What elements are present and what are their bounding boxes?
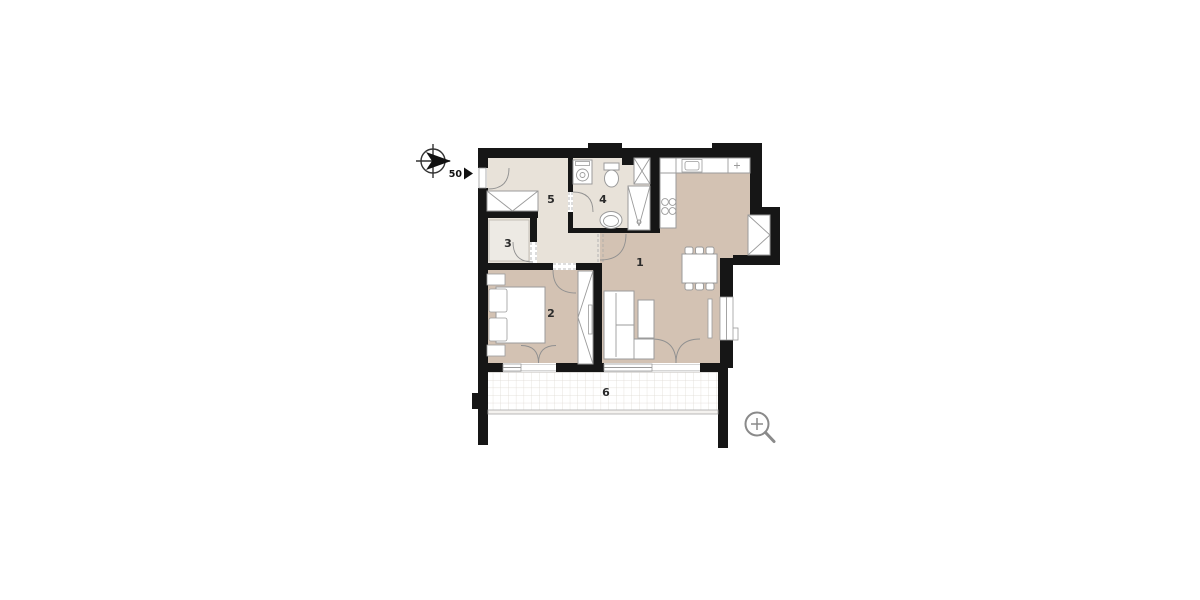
balcony-railing	[488, 410, 718, 414]
built-in-wardrobe	[748, 215, 770, 255]
window-right	[720, 297, 733, 340]
room-label-5: 5	[547, 193, 555, 206]
sideboard	[708, 299, 712, 338]
bathroom-sink	[600, 212, 622, 229]
window-bedroom-bottom	[503, 364, 521, 371]
zoom-in-icon[interactable]	[746, 413, 775, 442]
room-label-4: 4	[599, 193, 607, 206]
entrance-marker-label: 50	[449, 169, 463, 180]
washing-machine	[573, 160, 592, 184]
dining-table	[682, 254, 717, 283]
entrance-arrow-icon	[464, 168, 473, 180]
entrance-marker: 50	[449, 168, 473, 181]
room-label-2: 2	[547, 307, 555, 320]
floor-plan-viewer: 1 2 3 4 5 6 50	[0, 0, 1200, 600]
entry-wardrobe	[487, 191, 538, 211]
room-label-6: 6	[602, 386, 610, 399]
floor-plan-canvas: 1 2 3 4 5 6 50	[0, 0, 1200, 600]
toilet	[604, 163, 619, 187]
compass-icon	[416, 144, 451, 178]
room-label-3: 3	[504, 237, 512, 250]
bedroom-wardrobe	[578, 271, 593, 364]
ventilation-shaft	[634, 158, 650, 184]
kitchen-sink	[682, 160, 702, 173]
coffee-table	[638, 300, 654, 338]
room-label-1: 1	[636, 256, 644, 269]
shower	[628, 186, 650, 230]
window-living-bottom	[604, 364, 652, 371]
